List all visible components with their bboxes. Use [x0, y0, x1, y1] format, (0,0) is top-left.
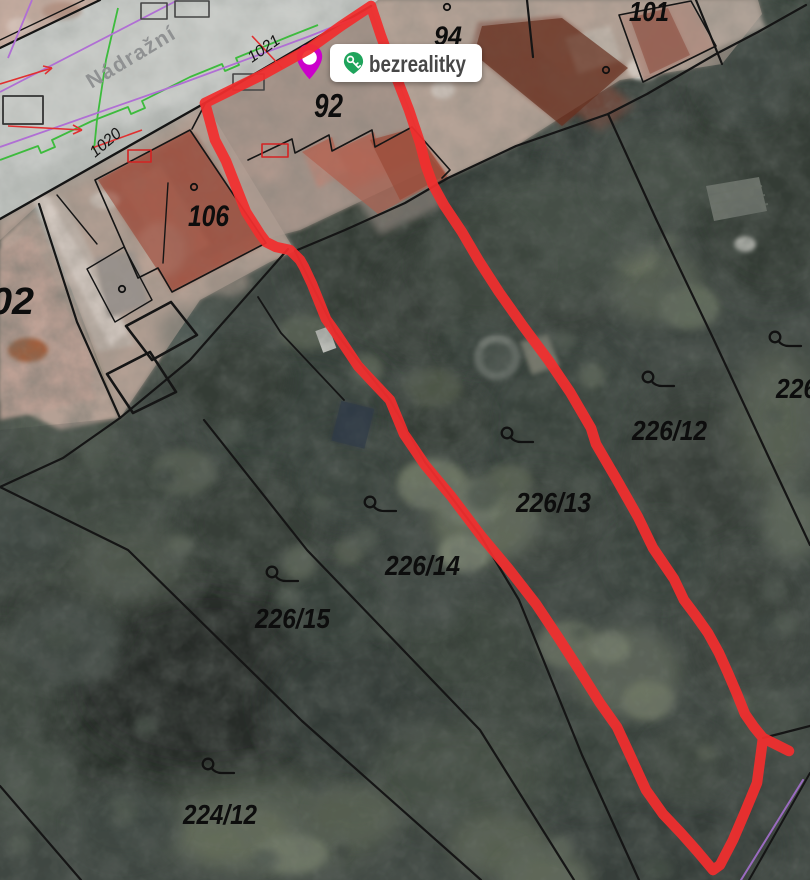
svg-text:106: 106	[188, 200, 229, 233]
svg-text:226/: 226/	[775, 373, 810, 404]
svg-text:226/15: 226/15	[254, 603, 330, 634]
svg-text:226/12: 226/12	[631, 415, 707, 446]
svg-text:224/12: 224/12	[182, 799, 257, 830]
svg-text:02: 02	[0, 281, 34, 323]
svg-text:101: 101	[629, 0, 669, 27]
svg-text:bezrealitky: bezrealitky	[369, 51, 466, 77]
svg-text:92: 92	[314, 87, 344, 124]
svg-text:226/14: 226/14	[384, 550, 460, 581]
svg-text:226/13: 226/13	[515, 487, 591, 518]
